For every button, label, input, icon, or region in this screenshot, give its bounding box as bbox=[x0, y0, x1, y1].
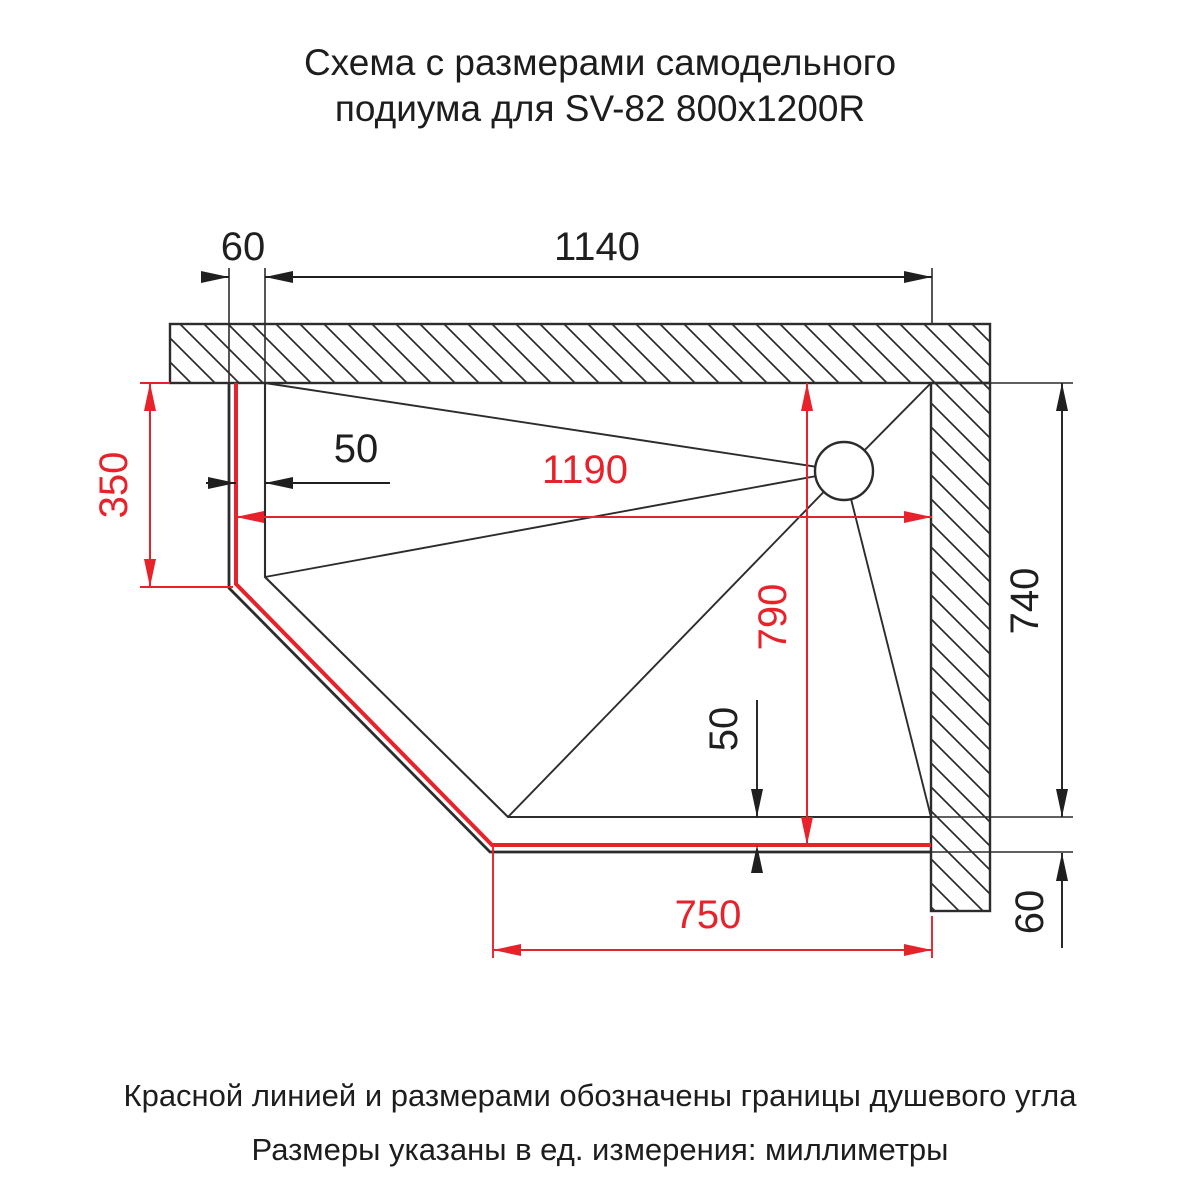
page-title-line2: подиума для SV-82 800x1200R bbox=[335, 88, 865, 129]
dim-value-1190: 1190 bbox=[542, 448, 628, 492]
dim-value-740: 740 bbox=[1003, 568, 1047, 635]
dim-top-60: 60 bbox=[201, 225, 265, 283]
arrowhead-down-icon bbox=[751, 789, 763, 817]
dim-top-1140: 1140 bbox=[265, 225, 932, 283]
arrowhead-up-icon bbox=[144, 383, 156, 411]
dim-60-bottom-right: 60 bbox=[1008, 853, 1068, 948]
arrowhead-down-icon bbox=[1056, 789, 1068, 817]
right-wall-hatched bbox=[931, 383, 990, 911]
arrowhead-right-icon bbox=[201, 271, 229, 283]
arrowhead-left-icon bbox=[236, 511, 264, 523]
arrowhead-up-icon bbox=[1056, 383, 1068, 411]
dim-790: 790 bbox=[751, 383, 813, 845]
arrowhead-left-icon bbox=[265, 477, 293, 489]
drain-circle bbox=[815, 442, 873, 500]
arrowhead-up-icon bbox=[751, 845, 763, 873]
page-title-line1: Схема с размерами самодельного bbox=[304, 42, 896, 83]
dim-740: 740 bbox=[1003, 383, 1068, 817]
arrowhead-left-icon bbox=[265, 271, 293, 283]
footer-note-units: Размеры указаны в ед. измерения: миллиме… bbox=[252, 1132, 949, 1167]
arrowhead-right-icon bbox=[208, 477, 236, 489]
dim-50-top: 50 bbox=[206, 427, 390, 489]
dim-value-750: 750 bbox=[675, 893, 742, 937]
dim-value-1140: 1140 bbox=[554, 225, 640, 269]
dim-750: 750 bbox=[493, 845, 932, 958]
arrowhead-right-icon bbox=[904, 511, 932, 523]
arrowhead-left-icon bbox=[493, 944, 521, 956]
footer-note-red-legend: Красной линией и размерами обозначены гр… bbox=[124, 1078, 1078, 1113]
arrowhead-up-icon bbox=[1056, 853, 1068, 881]
dim-value-790: 790 bbox=[751, 584, 795, 651]
slope-line-bottom-right bbox=[844, 471, 931, 817]
arrowhead-down-icon bbox=[144, 559, 156, 587]
dim-value-50-top: 50 bbox=[334, 427, 379, 471]
podium-scheme-page: Схема с размерами самодельного подиума д… bbox=[0, 0, 1200, 1200]
arrowhead-right-icon bbox=[904, 271, 932, 283]
arrowhead-right-icon bbox=[904, 944, 932, 956]
podium-diagram: Схема с размерами самодельного подиума д… bbox=[0, 0, 1200, 1200]
dim-value-60-top: 60 bbox=[221, 225, 266, 269]
dim-value-350: 350 bbox=[92, 452, 136, 519]
dim-50-bottom: 50 bbox=[702, 700, 763, 873]
top-wall-hatched bbox=[170, 324, 990, 383]
arrowhead-down-icon bbox=[801, 817, 813, 845]
arrowhead-up-icon bbox=[801, 383, 813, 411]
dim-value-60-right: 60 bbox=[1008, 890, 1052, 935]
dim-value-50-bottom: 50 bbox=[702, 707, 746, 752]
walls bbox=[170, 324, 990, 911]
